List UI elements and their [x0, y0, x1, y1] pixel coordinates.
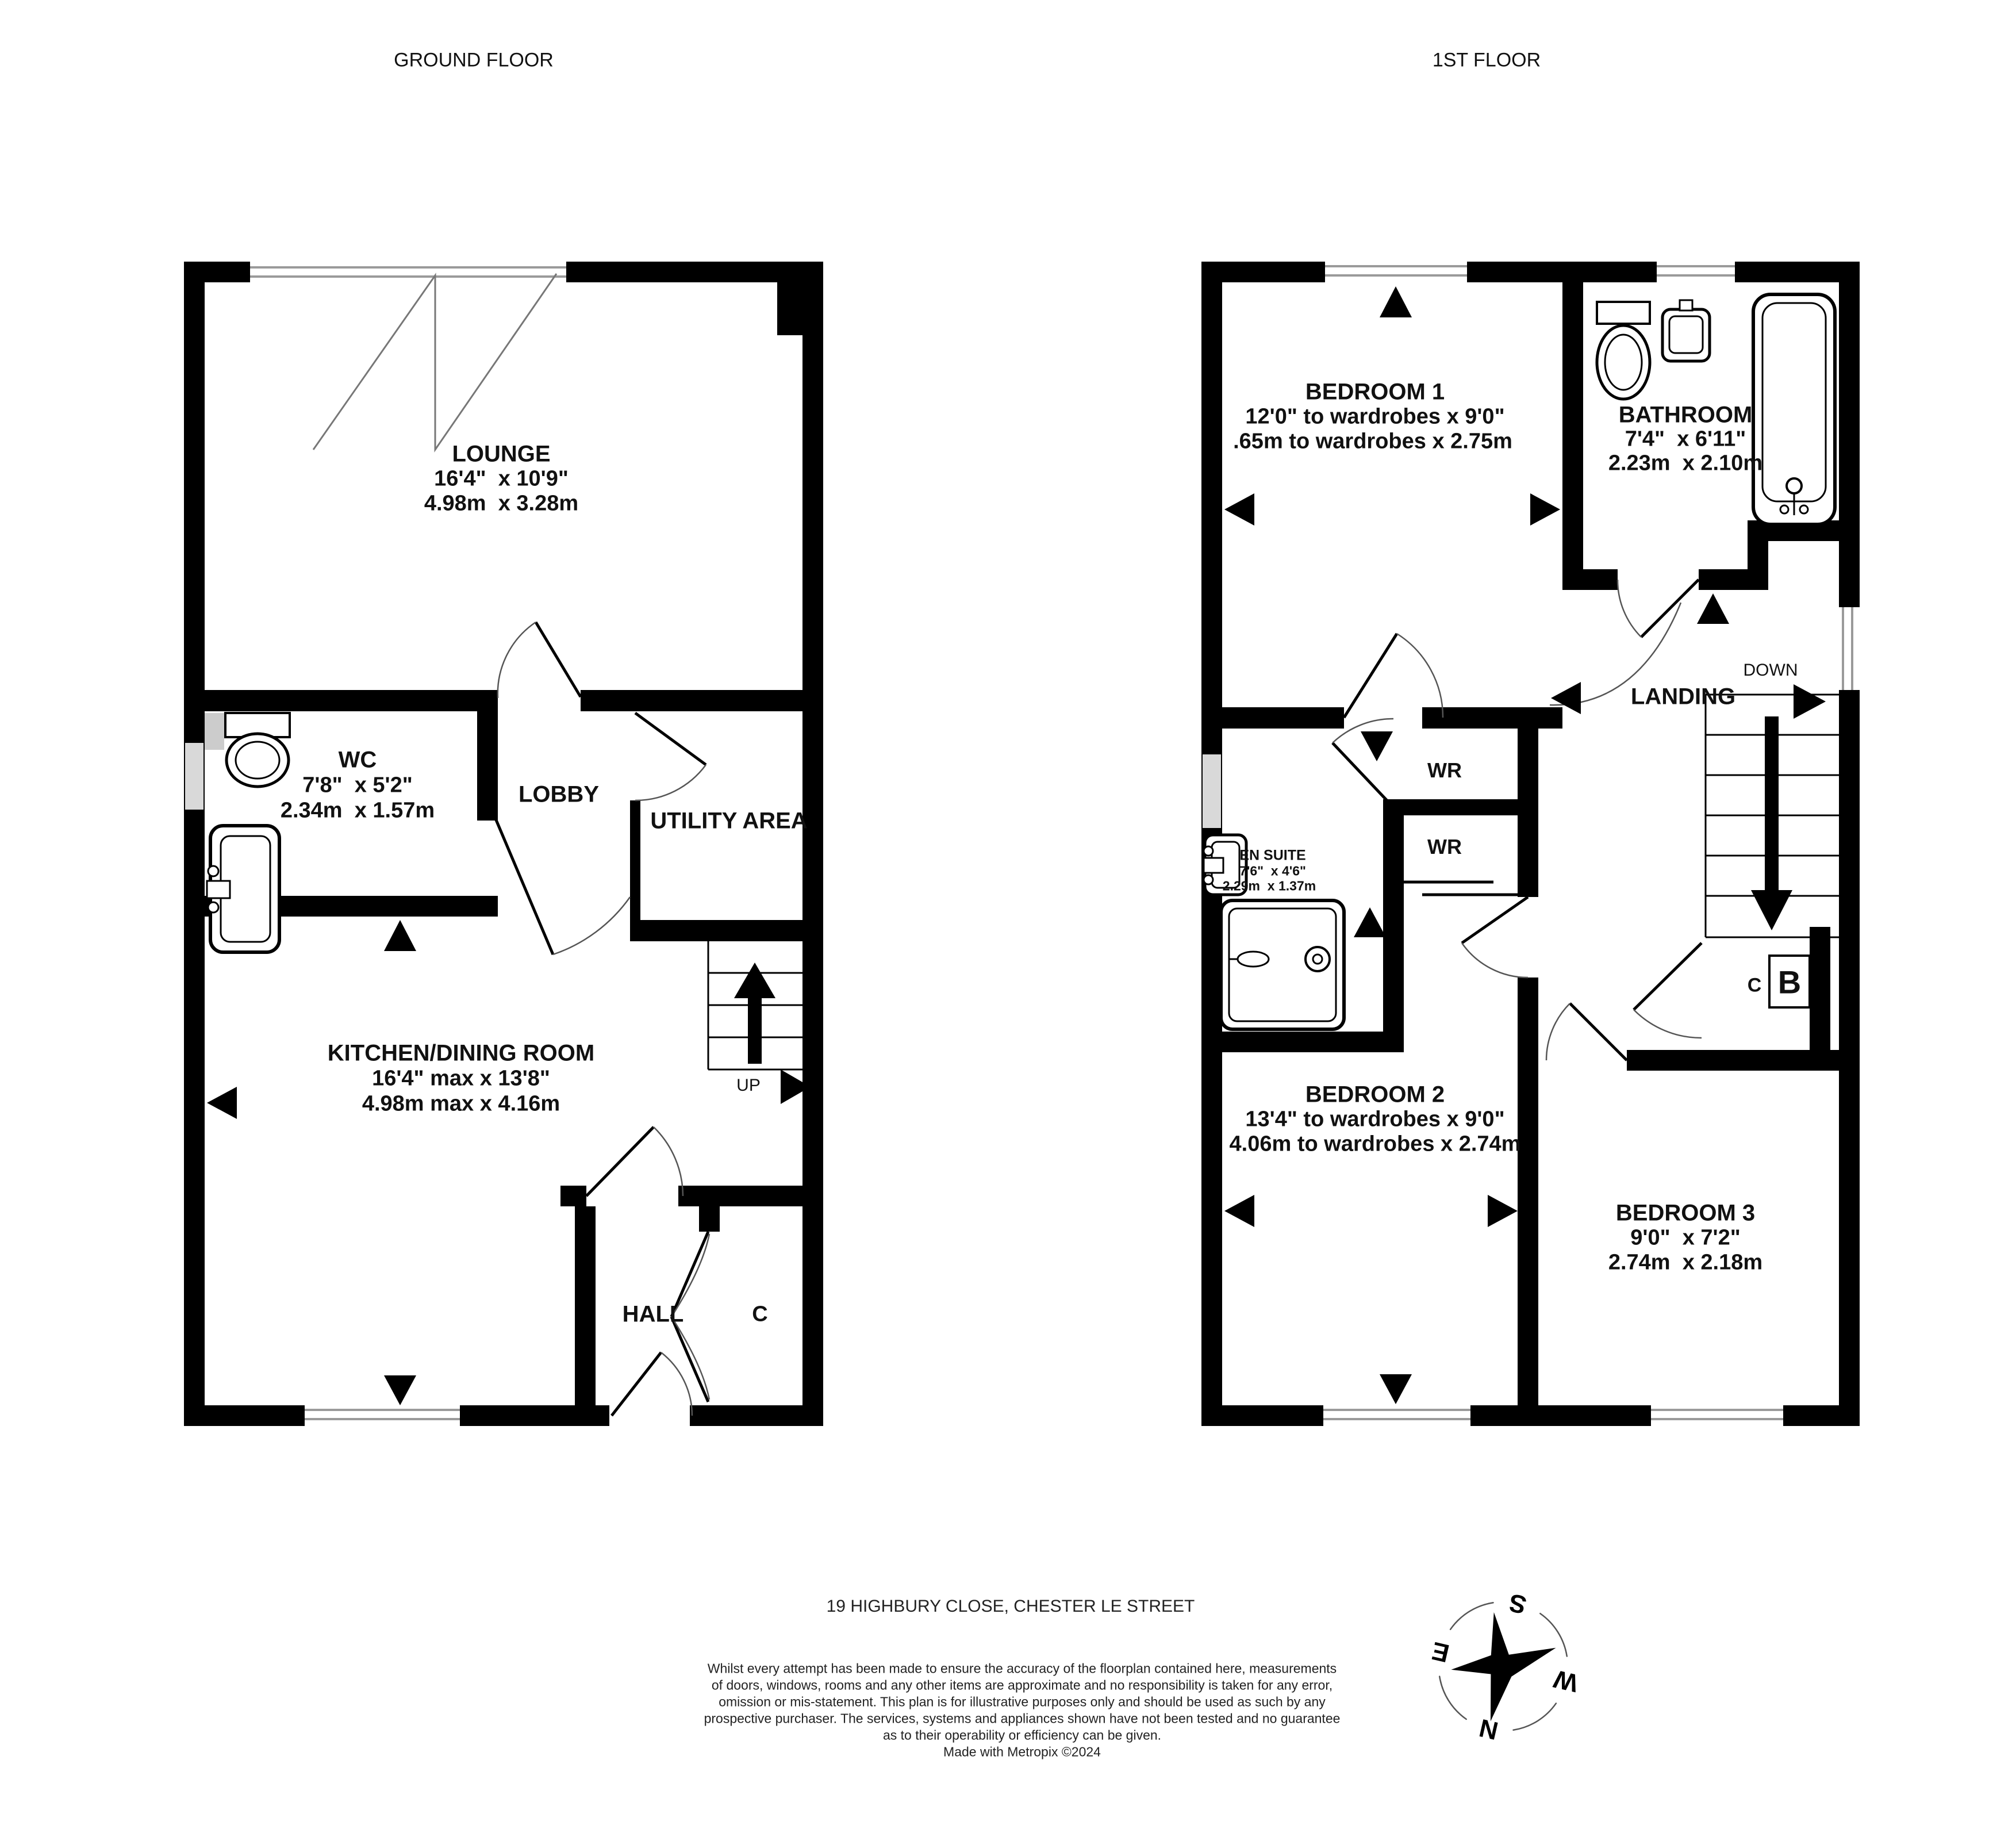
- disclaimer-line: Whilst every attempt has been made to en…: [708, 1661, 1337, 1677]
- ensuite-metric: 2.29m x 1.37m: [1223, 879, 1316, 894]
- bathroom-sink-icon: [1662, 300, 1710, 361]
- floorplan-page: N E S W GROUND FLOOR 1ST FLOOR LOUNGE 16…: [0, 0, 2016, 1840]
- triangle-right-icon: [1530, 493, 1560, 526]
- lobby-name: LOBBY: [519, 782, 599, 808]
- kitchen-imperial: 16'4" max x 13'8": [372, 1067, 550, 1091]
- triangle-up-icon: [1380, 286, 1412, 317]
- ensuite-name: EN SUITE: [1239, 848, 1305, 864]
- triangle-down-icon: [384, 1375, 416, 1405]
- compass-s: S: [1506, 1588, 1529, 1619]
- triangle-left-icon: [1224, 493, 1254, 526]
- kitchen-metric: 4.98m max x 4.16m: [362, 1092, 560, 1117]
- triangle-left-icon: [1224, 1195, 1254, 1227]
- triangle-up-icon: [1697, 593, 1729, 624]
- bathtub-icon: [1753, 294, 1835, 524]
- bathroom-metric: 2.23m x 2.10m: [1608, 451, 1762, 476]
- wr-top-label: WR: [1427, 758, 1462, 783]
- triangle-down-icon: [1361, 731, 1393, 761]
- ground-stairs: [708, 941, 802, 1069]
- bedroom3-metric: 2.74m x 2.18m: [1608, 1251, 1762, 1275]
- compass-icon: N E S W: [1415, 1574, 1595, 1760]
- wc-name: WC: [339, 747, 377, 773]
- lounge-metric: 4.98m x 3.28m: [424, 492, 578, 516]
- triangle-up-icon: [384, 920, 416, 951]
- down-arrow-head-icon: [1751, 890, 1792, 930]
- down-arrow-icon: [1765, 716, 1779, 895]
- bedroom1-name: BEDROOM 1: [1305, 379, 1445, 405]
- bedroom2-metric: 4.06m to wardrobes x 2.74m: [1230, 1132, 1521, 1157]
- bathroom-name: BATHROOM: [1619, 402, 1753, 428]
- kitchen-name: KITCHEN/DINING ROOM: [328, 1041, 594, 1067]
- wc-metric: 2.34m x 1.57m: [281, 799, 435, 823]
- disclaimer-line: prospective purchaser. The services, sys…: [704, 1711, 1341, 1727]
- compass-n: N: [1477, 1713, 1501, 1745]
- wc-imperial: 7'8" x 5'2": [302, 773, 412, 798]
- ground-floor-plan: [184, 262, 823, 1426]
- first-stairs: [1706, 695, 1839, 937]
- bathroom-imperial: 7'4" x 6'11": [1625, 427, 1746, 452]
- triangle-down-icon: [1380, 1374, 1412, 1404]
- triangle-left-icon: [207, 1087, 237, 1119]
- triangle-up-icon: [1354, 907, 1386, 937]
- lounge-imperial: 16'4" x 10'9": [434, 467, 569, 492]
- floorplan-geometry: N E S W: [0, 0, 2016, 1840]
- up-arrow-head-icon: [734, 963, 775, 998]
- bathroom-toilet-icon: [1597, 302, 1650, 399]
- first-floor-title: 1ST FLOOR: [1433, 49, 1541, 72]
- up-label: UP: [736, 1076, 761, 1095]
- up-arrow-icon: [748, 995, 762, 1064]
- disclaimer-line: Made with Metropix ©2024: [943, 1745, 1101, 1760]
- bedroom3-imperial: 9'0" x 7'2": [1630, 1226, 1740, 1251]
- disclaimer-line: omission or mis-statement. This plan is …: [719, 1695, 1326, 1710]
- ground-floor-title: GROUND FLOOR: [394, 49, 554, 72]
- landing-name: LANDING: [1631, 684, 1735, 710]
- down-label: DOWN: [1744, 661, 1798, 680]
- wc-toilet-icon: [205, 713, 290, 787]
- shower-icon: [1221, 900, 1344, 1029]
- bedroom1-metric: .65m to wardrobes x 2.75m: [1233, 430, 1512, 454]
- disclaimer-line: of doors, windows, rooms and any other i…: [712, 1678, 1333, 1693]
- ground-markers: [207, 920, 811, 1405]
- bedroom1-imperial: 12'0" to wardrobes x 9'0": [1245, 405, 1504, 430]
- compass-e: E: [1429, 1636, 1452, 1667]
- triangle-right-icon: [1794, 684, 1826, 719]
- ensuite-imperial: 7'6" x 4'6": [1239, 864, 1306, 879]
- disclaimer-line: as to their operability or efficiency ca…: [883, 1728, 1161, 1743]
- utility-name: UTILITY AREA: [650, 808, 807, 834]
- lounge-name: LOUNGE: [452, 442, 550, 467]
- bedroom3-name: BEDROOM 3: [1616, 1201, 1755, 1226]
- wc-sink-icon: [207, 826, 279, 952]
- first-cupboard-label: C: [1748, 975, 1762, 997]
- ground-doors: [490, 622, 709, 1416]
- compass-w: W: [1551, 1665, 1581, 1697]
- bedroom2-name: BEDROOM 2: [1305, 1082, 1445, 1108]
- address: 19 HIGHBURY CLOSE, CHESTER LE STREET: [827, 1597, 1195, 1616]
- wr-bottom-label: WR: [1427, 835, 1462, 859]
- boiler-label: B: [1778, 964, 1801, 1001]
- bedroom2-imperial: 13'4" to wardrobes x 9'0": [1245, 1107, 1504, 1132]
- hall-name: HALL: [623, 1302, 684, 1328]
- triangle-right-icon: [1488, 1195, 1518, 1227]
- ground-cupboard-label: C: [752, 1302, 767, 1327]
